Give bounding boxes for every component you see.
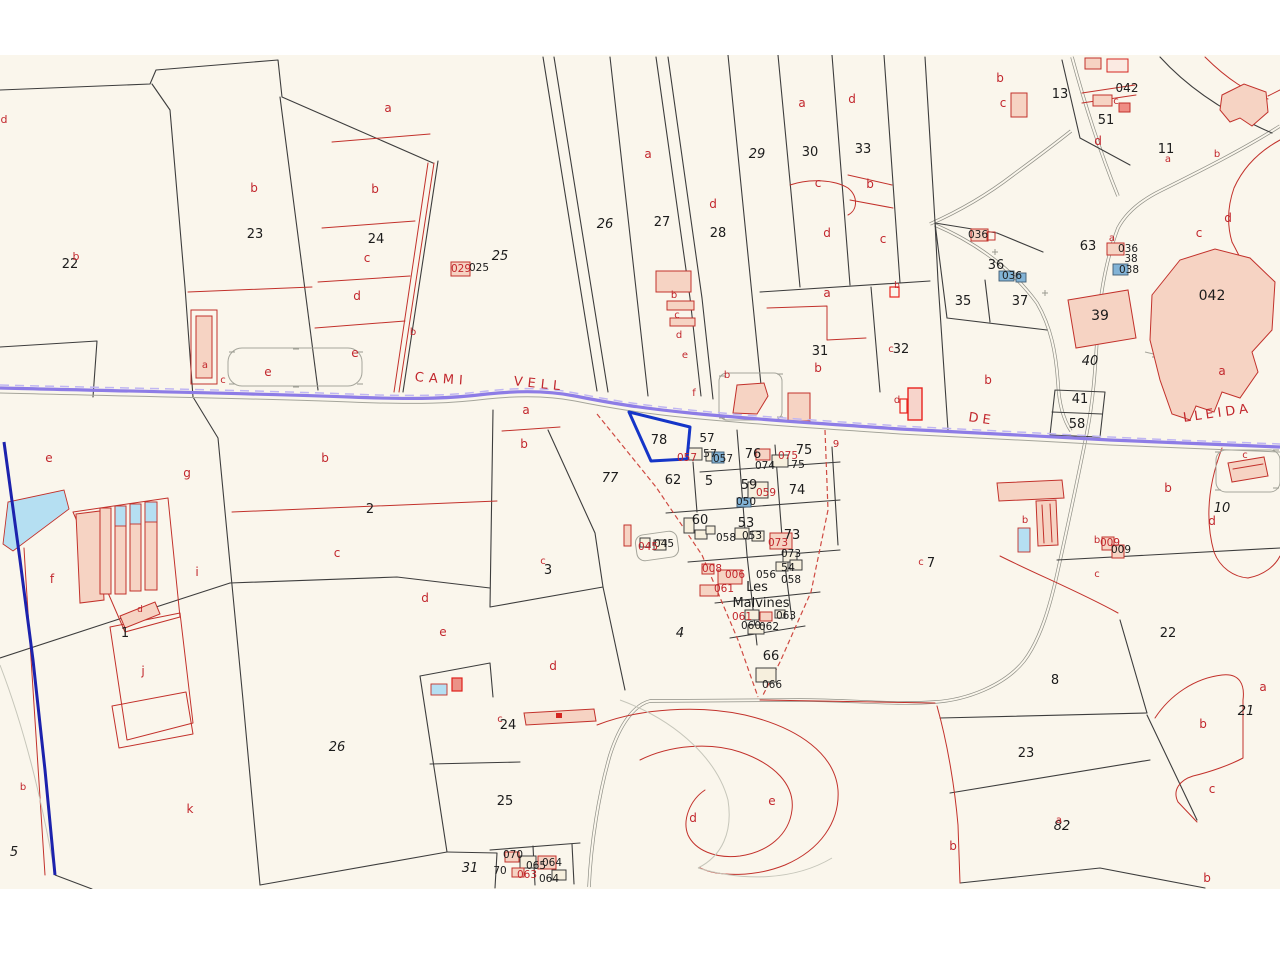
subparcel-letter-label: j bbox=[140, 664, 144, 678]
subparcel-letter-label: c bbox=[1094, 569, 1100, 580]
parcel-number-label: 54 bbox=[781, 561, 795, 574]
parcel-number-label: 33 bbox=[855, 142, 872, 157]
building-code-label: 045 bbox=[638, 541, 658, 553]
building-code-label: 029 bbox=[451, 263, 471, 275]
parcel-number-label: 51 bbox=[1098, 113, 1115, 128]
subparcel-letter-label: b bbox=[724, 370, 730, 381]
water-pond bbox=[431, 684, 447, 695]
subparcel-letter-label: a bbox=[1259, 680, 1266, 694]
parcel-number-label: 62 bbox=[665, 473, 682, 488]
subparcel-letter-label: b bbox=[1164, 481, 1172, 495]
subparcel-letter-label: b bbox=[520, 437, 528, 451]
subparcel-letter-label: a bbox=[1056, 815, 1062, 826]
building-code-label: 70 bbox=[493, 865, 506, 877]
subparcel-letter-label: d bbox=[1094, 134, 1102, 148]
parcel-number-label: 30 bbox=[802, 145, 819, 160]
parcel-number-label: 25 bbox=[492, 249, 509, 264]
subparcel-letter-label: a bbox=[1109, 233, 1115, 244]
subparcel-letter-label: a bbox=[798, 96, 805, 110]
subparcel-letter-label: i bbox=[195, 565, 198, 579]
parcel-number-label: 2 bbox=[366, 502, 374, 517]
parcel-number-label: 042 bbox=[1199, 288, 1226, 304]
building-code-label: 059 bbox=[756, 487, 776, 499]
parcel-number-label: 23 bbox=[1018, 746, 1035, 761]
subparcel-letter-label: k bbox=[187, 802, 194, 816]
parcel-number-label: 21 bbox=[1238, 704, 1255, 719]
building-code-label: 073 bbox=[781, 548, 801, 560]
subparcel-letter-label: b bbox=[671, 290, 677, 301]
building-code-label: 062 bbox=[759, 621, 779, 633]
subparcel-letter-label: b bbox=[984, 373, 992, 387]
parcel-number-label: 41 bbox=[1072, 392, 1089, 407]
subparcel-letter-label: d bbox=[848, 92, 856, 106]
subparcel-letter-label: b bbox=[894, 281, 900, 291]
parcel-number-label: 59 bbox=[741, 478, 758, 493]
parcel-number-label: 40 bbox=[1082, 354, 1099, 369]
subparcel-letter-label: c bbox=[815, 176, 822, 190]
bottom-margin bbox=[0, 889, 1280, 960]
parcel-number-label: 24 bbox=[368, 232, 385, 247]
building-code-label: 066 bbox=[762, 679, 782, 691]
subparcel-letter-label: c bbox=[1196, 226, 1203, 240]
subparcel-letter-label: b bbox=[1203, 871, 1211, 885]
subparcel-letter-label: b bbox=[1022, 515, 1028, 526]
subparcel-letter-label: b bbox=[996, 71, 1004, 85]
parcel-number-label: 66 bbox=[763, 649, 780, 664]
parcel-number-label: 74 bbox=[789, 483, 806, 498]
subparcel-letter-label: a bbox=[644, 147, 651, 161]
parcel-number-label: 57 bbox=[699, 431, 714, 445]
parcel-number-label: 35 bbox=[955, 294, 972, 309]
building-code-label: 008 bbox=[702, 563, 722, 575]
building-code-label: 061 bbox=[732, 611, 752, 623]
building-code-label: 038 bbox=[1119, 264, 1139, 276]
building-code-label: 064 bbox=[539, 873, 559, 885]
parcel-number-label: 31 bbox=[462, 861, 479, 876]
building-code-label: 036 bbox=[968, 229, 988, 241]
building-code-label: 058 bbox=[716, 532, 736, 544]
parcel-number-label: 1 bbox=[121, 626, 129, 641]
farm-buildings-east bbox=[997, 480, 1064, 501]
parcel-number-label: 5 bbox=[705, 474, 713, 489]
building-code-label: 075 bbox=[778, 450, 798, 462]
subparcel-letter-label: c bbox=[1209, 782, 1216, 796]
subparcel-letter-label: d bbox=[1, 113, 8, 126]
parcel-number-label: 31 bbox=[812, 344, 829, 359]
cadastral-map: 2223242526272829303331321351113635373940… bbox=[0, 0, 1280, 960]
subparcel-letter-label: b bbox=[814, 361, 822, 375]
subparcel-letter-label: a bbox=[1218, 364, 1225, 378]
parcel-number-label: 5 bbox=[10, 845, 18, 860]
subparcel-letter-label: b bbox=[866, 177, 874, 191]
subparcel-letter-label: c bbox=[364, 251, 371, 265]
parcel-number-label: 29 bbox=[749, 147, 766, 162]
parcel-number-label: 27 bbox=[654, 215, 671, 230]
subparcel-letter-label: g bbox=[183, 466, 191, 480]
subparcel-letter-label: a bbox=[823, 286, 830, 300]
subparcel-letter-label: e bbox=[45, 451, 52, 465]
parcel-number-label: 7 bbox=[927, 556, 935, 571]
subparcel-letter-label: c bbox=[1000, 96, 1007, 110]
parcel-number-label: 75 bbox=[796, 443, 813, 458]
place-name-label: Malvines bbox=[732, 596, 789, 611]
parcel-number-label: 042 bbox=[1116, 81, 1139, 95]
building-code-label: 006 bbox=[725, 569, 745, 581]
parcel-number-label: 63 bbox=[1080, 239, 1097, 254]
subparcel-letter-label: e bbox=[682, 350, 688, 361]
subparcel-letter-label: b bbox=[20, 782, 26, 793]
parcel-number-label: 37 bbox=[1012, 294, 1029, 309]
subparcel-letter-label: c bbox=[497, 714, 503, 725]
building-code-label: 050 bbox=[736, 496, 756, 508]
subparcel-letter-label: 9 bbox=[833, 439, 839, 450]
building-code-label: 070 bbox=[503, 849, 523, 861]
subparcel-letter-label: c bbox=[220, 375, 226, 386]
parcel-number-label: 26 bbox=[597, 217, 614, 232]
parcel-number-label: 58 bbox=[1069, 417, 1086, 432]
building-code-label: 074 bbox=[755, 460, 775, 472]
building-code-label: 009 bbox=[1100, 537, 1120, 549]
parcel-number-label: 25 bbox=[497, 794, 514, 809]
subparcel-letter-label: b bbox=[1094, 535, 1100, 546]
subparcel-letter-label: e bbox=[439, 625, 446, 639]
map-sheet bbox=[0, 55, 1280, 889]
subparcel-letter-label: b bbox=[371, 182, 379, 196]
subparcel-letter-label: f bbox=[692, 388, 696, 399]
map-canvas: 2223242526272829303331321351113635373940… bbox=[0, 0, 1280, 960]
subparcel-letter-label: c bbox=[1242, 450, 1248, 461]
subparcel-letter-label: a bbox=[1165, 154, 1171, 165]
subparcel-letter-label: b bbox=[321, 451, 329, 465]
parcel-number-label: 10 bbox=[1214, 501, 1231, 516]
building-code-label: 073 bbox=[768, 537, 788, 549]
subparcel-letter-label: d bbox=[689, 811, 697, 825]
subparcel-letter-label: b bbox=[1214, 149, 1220, 160]
building-code-label: 057 bbox=[713, 453, 733, 465]
parcel-number-label: 23 bbox=[247, 227, 264, 242]
subparcel-letter-label: e bbox=[264, 365, 271, 379]
parcel-number-label: 28 bbox=[710, 226, 727, 241]
building-code-label: 025 bbox=[469, 262, 489, 274]
subparcel-letter-label: c bbox=[888, 344, 894, 355]
building-code-label: 053 bbox=[742, 530, 762, 542]
subparcel-letter-label: b bbox=[1199, 717, 1207, 731]
building-code-label: 057 bbox=[677, 452, 697, 464]
parcel-number-label: 60 bbox=[692, 513, 709, 528]
parcel-number-label: 13 bbox=[1052, 87, 1069, 102]
subparcel-letter-label: d bbox=[1224, 211, 1232, 225]
subparcel-letter-label: d bbox=[894, 395, 900, 406]
subparcel-letter-label: c bbox=[540, 556, 546, 567]
subparcel-letter-label: a bbox=[202, 360, 208, 371]
subparcel-letter-label: c bbox=[334, 546, 341, 560]
top-margin bbox=[0, 0, 1280, 55]
subparcel-letter-label: c bbox=[1113, 96, 1119, 107]
subparcel-letter-label: d bbox=[421, 591, 429, 605]
subparcel-letter-label: b bbox=[73, 250, 80, 263]
place-name-label: Les bbox=[746, 580, 768, 595]
building-code-label: 064 bbox=[542, 857, 562, 869]
building-code-label: 063 bbox=[517, 869, 537, 881]
subparcel-letter-label: b bbox=[949, 839, 957, 853]
subparcel-letter-label: e bbox=[768, 794, 775, 808]
parcel-number-label: 22 bbox=[1160, 626, 1177, 641]
parcel-number-label: 39 bbox=[1091, 308, 1109, 324]
subparcel-letter-label: d bbox=[549, 659, 557, 673]
subparcel-letter-label: c bbox=[880, 232, 887, 246]
subparcel-letter-label: d bbox=[709, 197, 717, 211]
parcel-number-label: 78 bbox=[651, 433, 668, 448]
subparcel-letter-label: a bbox=[522, 403, 529, 417]
subparcel-letter-label: d bbox=[353, 289, 361, 303]
subparcel-letter-label: a bbox=[384, 101, 391, 115]
parcel-number-label: 4 bbox=[676, 626, 684, 641]
parcel-number-label: 53 bbox=[738, 516, 755, 531]
parcel-number-label: 77 bbox=[602, 471, 619, 486]
subparcel-letter-label: e bbox=[351, 346, 358, 360]
parcel-number-label: 8 bbox=[1051, 673, 1059, 688]
subparcel-letter-label: b bbox=[410, 327, 416, 338]
building-code-label: 058 bbox=[781, 574, 801, 586]
subparcel-letter-label: d bbox=[137, 605, 143, 615]
subparcel-letter-label: c bbox=[674, 310, 680, 321]
subparcel-letter-label: d bbox=[823, 226, 831, 240]
parcel-number-label: 26 bbox=[329, 740, 346, 755]
parcel-number-label: 32 bbox=[893, 342, 910, 357]
subparcel-letter-label: c bbox=[918, 557, 924, 568]
subparcel-letter-label: d bbox=[1208, 514, 1216, 528]
building-code-label: 061 bbox=[714, 583, 734, 595]
subparcel-letter-label: d bbox=[676, 330, 682, 341]
subparcel-letter-label: b bbox=[250, 181, 258, 195]
building-code-label: 036 bbox=[1002, 270, 1022, 282]
